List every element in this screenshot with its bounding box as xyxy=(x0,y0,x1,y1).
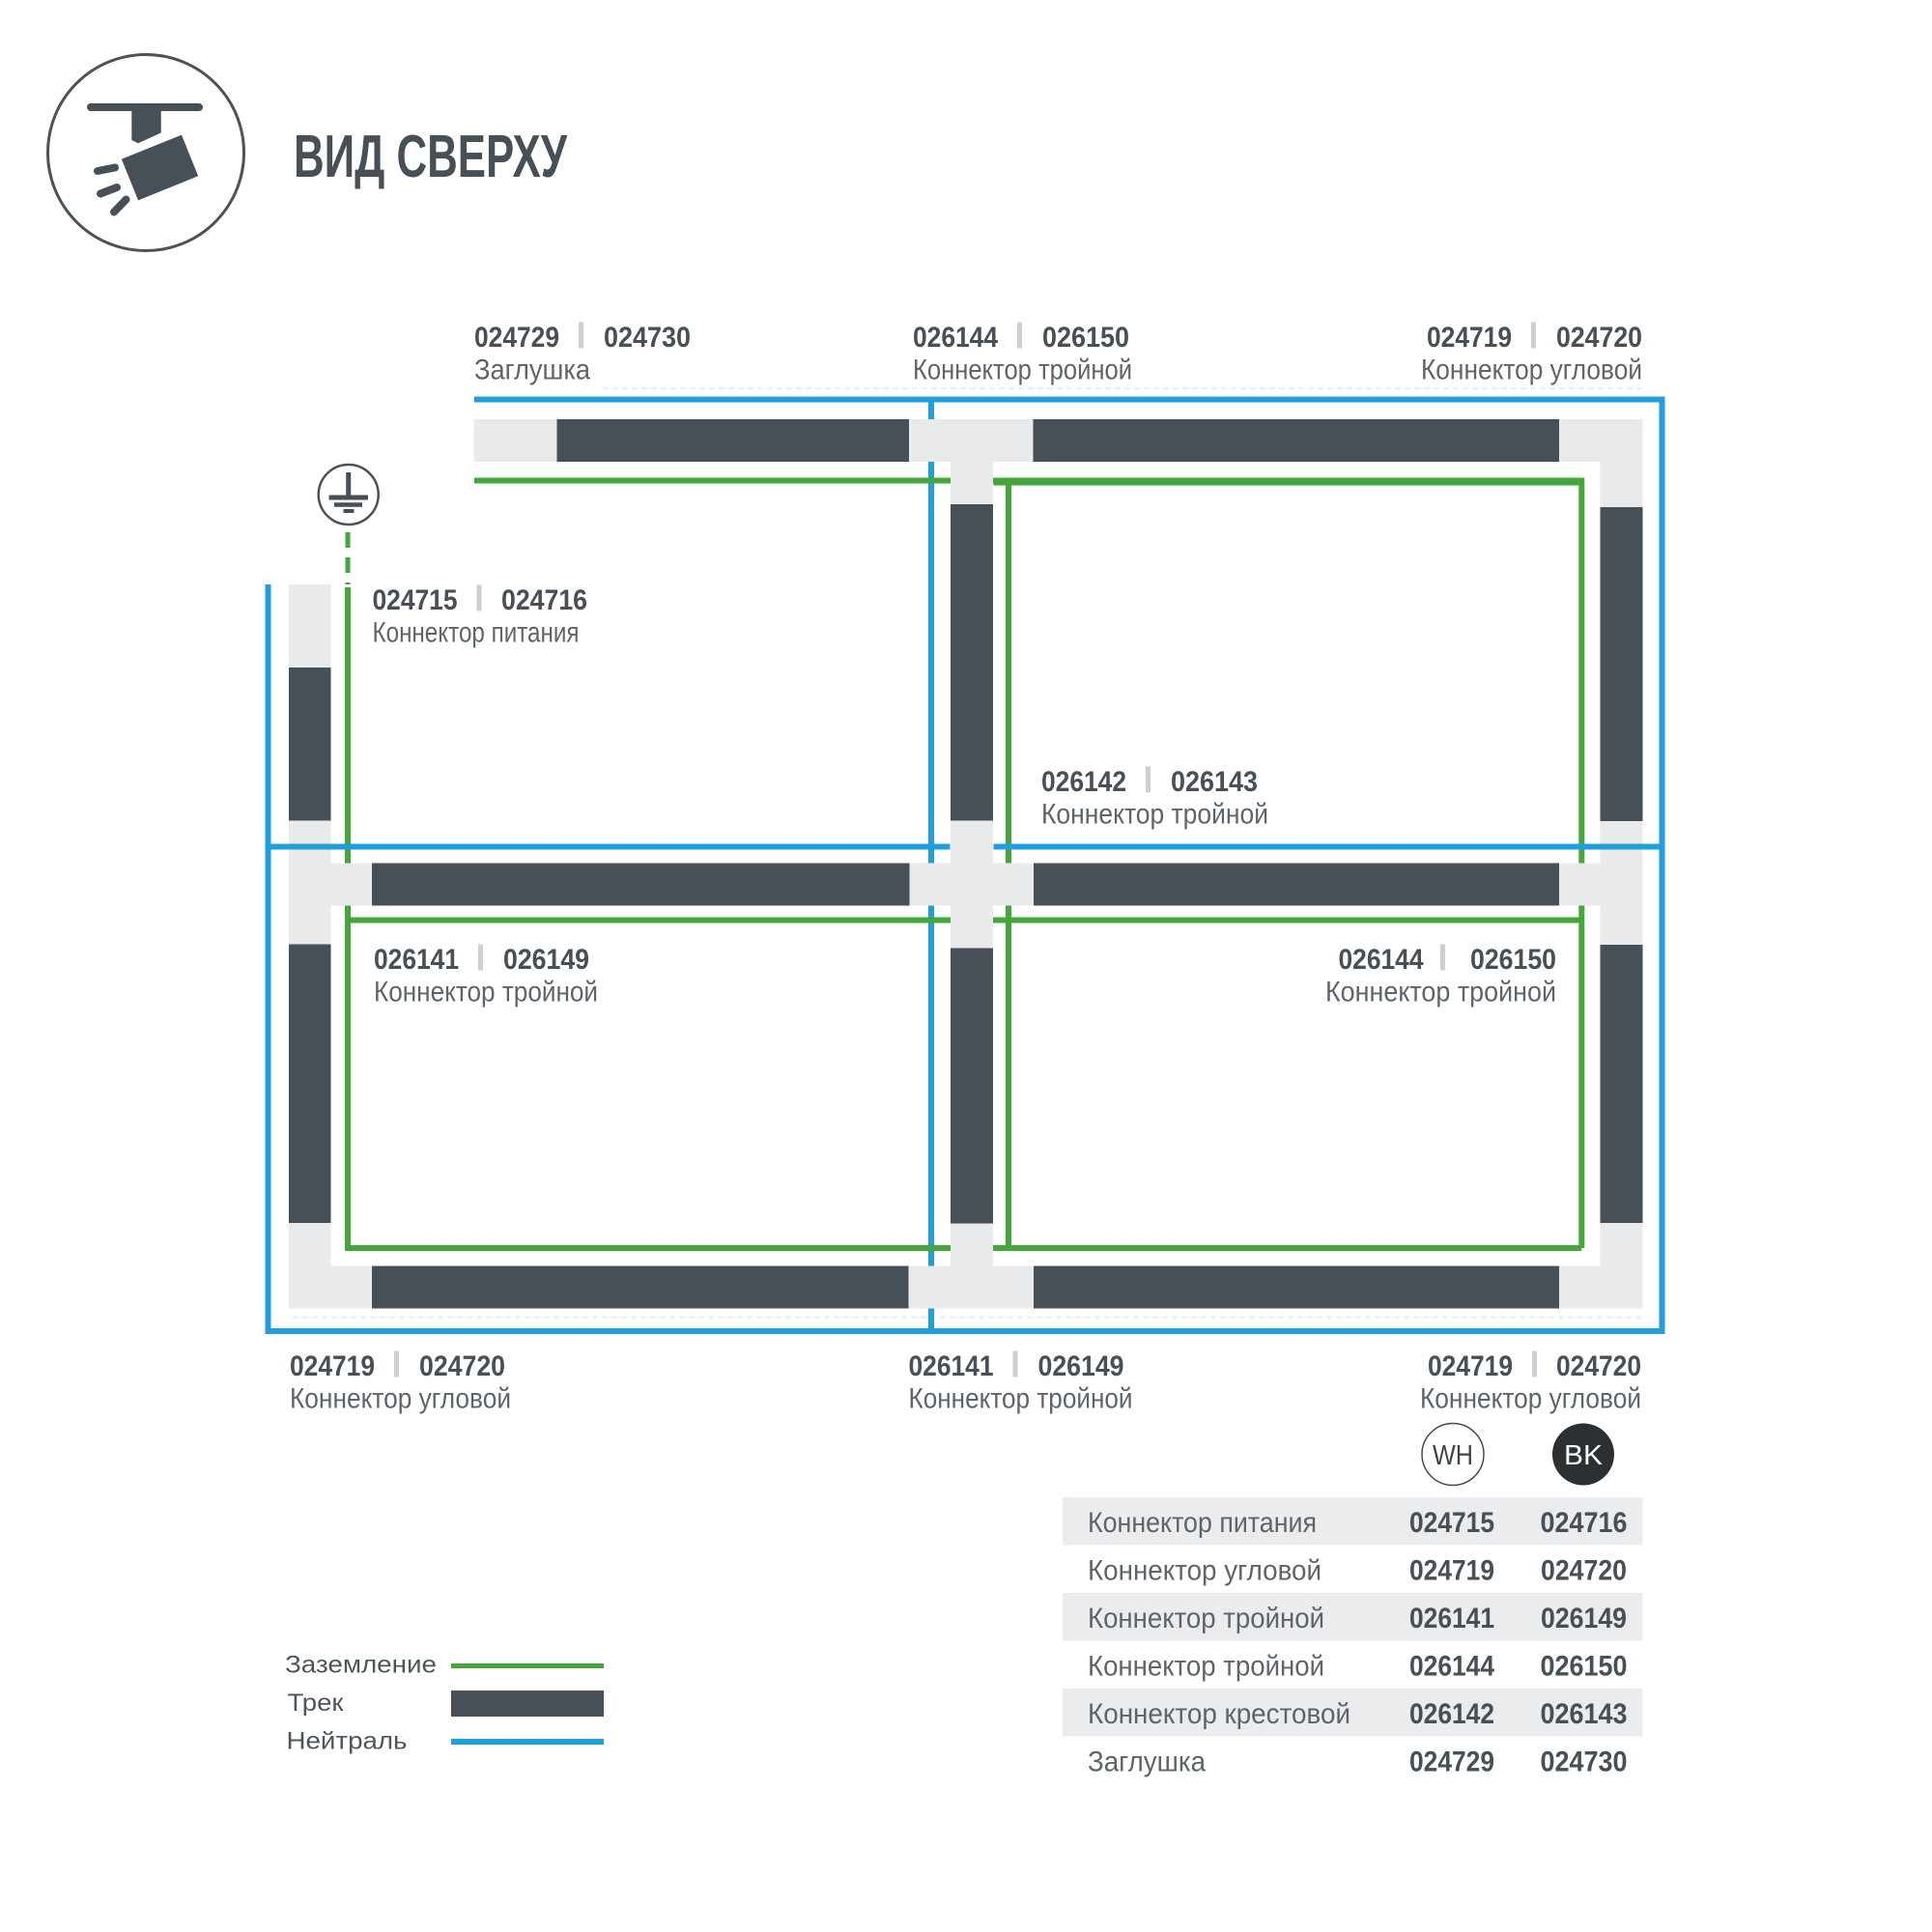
svg-text:026141: 026141 xyxy=(909,1350,994,1382)
svg-text:024716: 024716 xyxy=(1541,1507,1628,1539)
svg-text:Коннектор тройной: Коннектор тройной xyxy=(1088,1651,1324,1683)
svg-text:026143: 026143 xyxy=(1541,1698,1628,1730)
svg-text:024729: 024729 xyxy=(474,322,559,354)
svg-text:026142: 026142 xyxy=(1409,1698,1494,1730)
svg-text:024720: 024720 xyxy=(1556,322,1642,354)
svg-text:024716: 024716 xyxy=(501,584,587,616)
svg-text:024715: 024715 xyxy=(1409,1507,1494,1539)
svg-text:026149: 026149 xyxy=(1038,1350,1124,1382)
svg-text:024715: 024715 xyxy=(373,584,458,616)
svg-text:024730: 024730 xyxy=(1541,1747,1628,1778)
svg-text:026144: 026144 xyxy=(1409,1651,1494,1683)
svg-text:Коннектор тройной: Коннектор тройной xyxy=(374,977,598,1009)
svg-text:024719: 024719 xyxy=(290,1350,375,1382)
svg-text:024730: 024730 xyxy=(604,322,691,354)
svg-text:024720: 024720 xyxy=(1556,1350,1641,1382)
svg-text:Заглушка: Заглушка xyxy=(1088,1747,1206,1778)
svg-text:BK: BK xyxy=(1564,1440,1604,1471)
svg-text:Коннектор тройной: Коннектор тройной xyxy=(909,1383,1133,1415)
svg-text:024729: 024729 xyxy=(1409,1747,1494,1778)
svg-text:026142: 026142 xyxy=(1041,766,1126,798)
svg-text:Коннектор тройной: Коннектор тройной xyxy=(1088,1603,1324,1634)
svg-text:Коннектор угловой: Коннектор угловой xyxy=(1088,1555,1321,1587)
svg-text:026150: 026150 xyxy=(1470,944,1556,976)
svg-text:Нейтраль: Нейтраль xyxy=(287,1728,408,1755)
svg-text:024720: 024720 xyxy=(419,1350,505,1382)
svg-text:Коннектор угловой: Коннектор угловой xyxy=(1421,355,1642,386)
svg-text:Заглушка: Заглушка xyxy=(474,355,590,386)
svg-text:Коннектор угловой: Коннектор угловой xyxy=(1420,1383,1641,1415)
svg-text:026143: 026143 xyxy=(1171,766,1258,798)
svg-text:Коннектор питания: Коннектор питания xyxy=(1088,1507,1317,1539)
svg-text:Коннектор питания: Коннектор питания xyxy=(373,617,580,649)
svg-text:WH: WH xyxy=(1433,1440,1473,1471)
svg-text:024719: 024719 xyxy=(1427,322,1512,354)
svg-text:Трек: Трек xyxy=(288,1690,345,1717)
svg-text:024719: 024719 xyxy=(1428,1350,1513,1382)
svg-text:026150: 026150 xyxy=(1042,322,1129,354)
svg-text:Коннектор тройной: Коннектор тройной xyxy=(1041,799,1268,831)
svg-text:Коннектор угловой: Коннектор угловой xyxy=(290,1383,511,1415)
svg-text:Коннектор крестовой: Коннектор крестовой xyxy=(1088,1698,1350,1730)
svg-text:026144: 026144 xyxy=(1339,944,1424,976)
svg-text:026149: 026149 xyxy=(503,944,589,976)
svg-text:026149: 026149 xyxy=(1541,1603,1627,1634)
svg-text:026144: 026144 xyxy=(913,322,998,354)
svg-text:026141: 026141 xyxy=(1409,1603,1494,1634)
svg-text:024719: 024719 xyxy=(1409,1555,1494,1587)
svg-text:026150: 026150 xyxy=(1541,1651,1628,1683)
svg-text:Коннектор тройной: Коннектор тройной xyxy=(1325,977,1556,1009)
svg-text:024720: 024720 xyxy=(1541,1555,1627,1587)
svg-text:Коннектор тройной: Коннектор тройной xyxy=(913,355,1132,386)
svg-text:Заземление: Заземление xyxy=(285,1652,437,1679)
svg-text:026141: 026141 xyxy=(374,944,459,976)
svg-text:ВИД СВЕРХУ: ВИД СВЕРХУ xyxy=(294,124,568,190)
